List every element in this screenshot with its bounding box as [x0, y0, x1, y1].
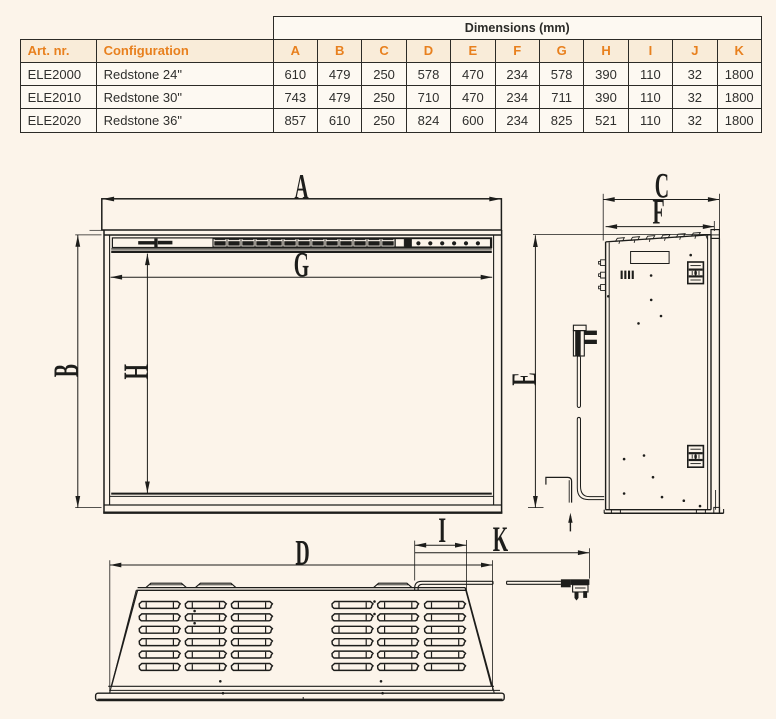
svg-text:H: H: [117, 364, 157, 380]
svg-text:D: D: [295, 534, 309, 574]
svg-text:E: E: [505, 372, 545, 385]
svg-text:I: I: [438, 511, 446, 551]
svg-text:G: G: [294, 246, 309, 286]
svg-text:A: A: [294, 167, 308, 207]
svg-text:K: K: [493, 520, 509, 560]
svg-text:F: F: [652, 193, 664, 233]
svg-text:B: B: [47, 364, 87, 377]
